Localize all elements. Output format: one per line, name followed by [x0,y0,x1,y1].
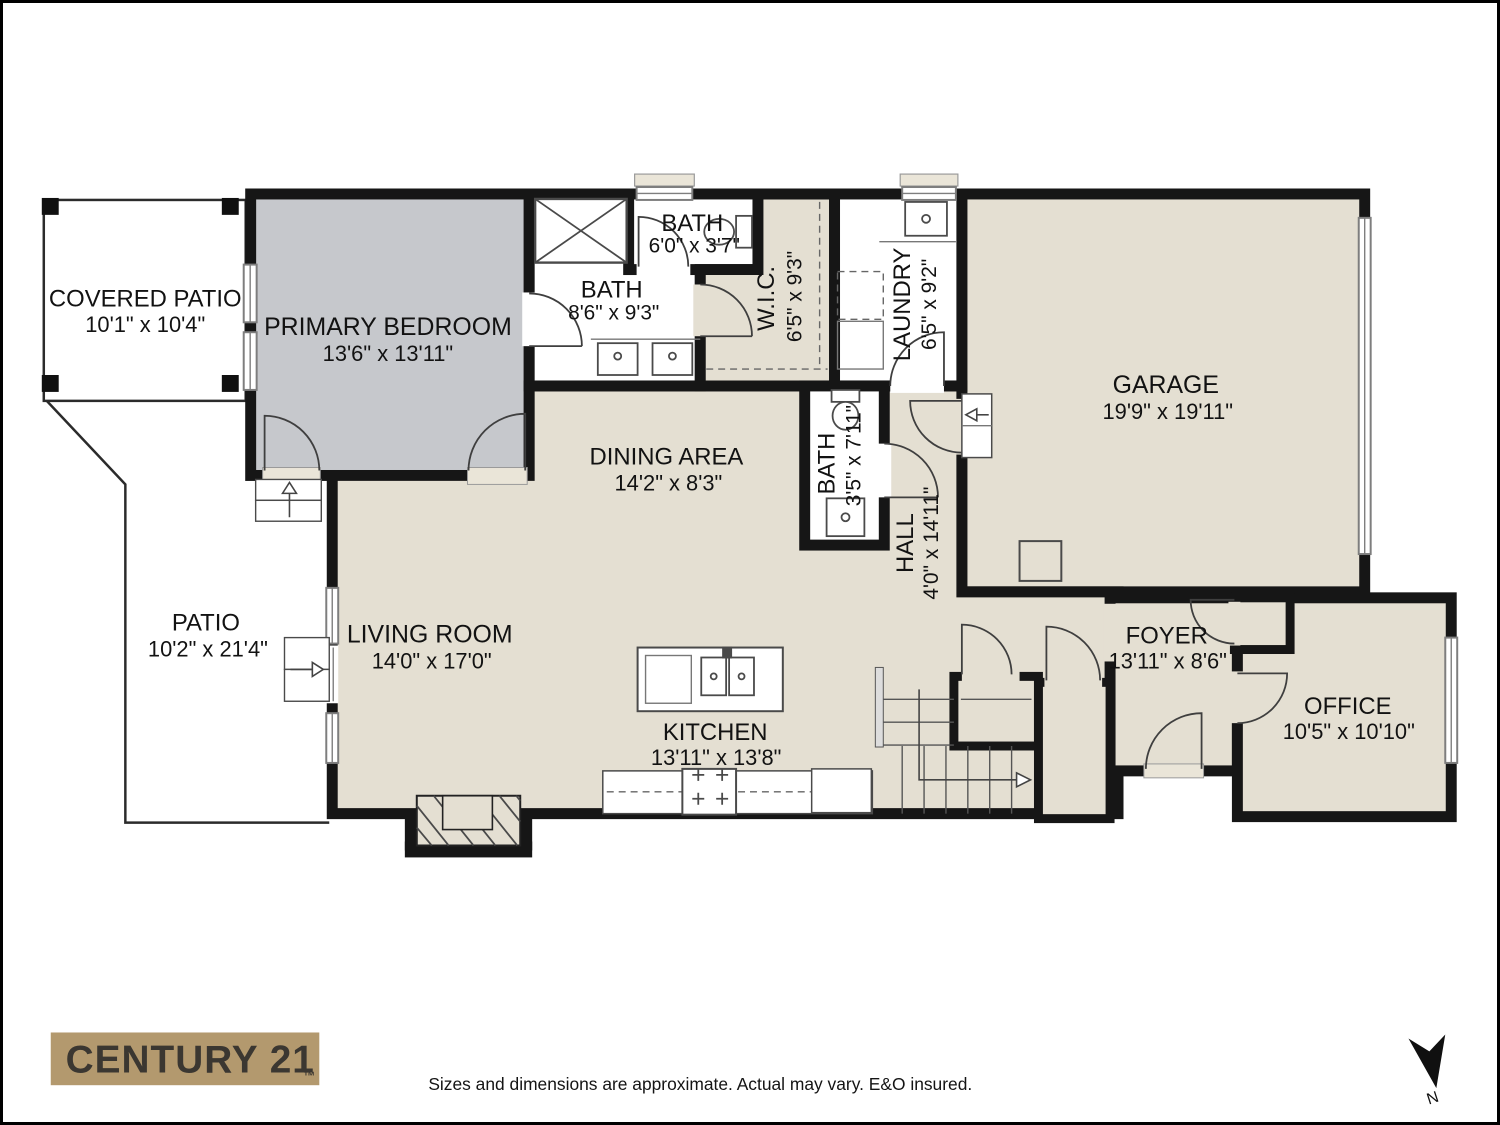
room-dims-laundry: 6'5" x 9'2" [918,259,941,350]
patio-step [256,500,322,521]
room-label-patio: PATIO [172,610,240,637]
room-dims-patio: 10'2" x 21'4" [148,636,268,661]
patio-post [222,375,239,392]
kitchen-sink [701,657,726,695]
patio-post [42,198,59,215]
front-door-opening [1144,764,1204,778]
room-label-bath-primary: BATH [581,276,643,303]
fireplace-side-wall [405,811,417,851]
floor-plan-drawing: COVERED PATIO 10'1" x 10'4" PRIMARY BEDR… [3,3,1497,1122]
room-dims-covered-patio: 10'1" x 10'4" [85,312,205,337]
stair-rail [875,667,883,747]
appliance [812,769,872,813]
room-dims-bath-shower: 6'0" x 3'7" [649,235,740,258]
patio-step [284,638,329,670]
patio-post [42,375,59,392]
century21-logo-text: CENTURY 21 [66,1038,315,1081]
coat-closet-door-opening [1228,602,1240,646]
north-arrow-icon [1408,1034,1445,1088]
kitchen-sink [729,657,754,695]
room-dims-dining: 14'2" x 8'3" [615,470,723,495]
bath-shower-door-opening [637,263,691,277]
wic-door-opening [693,284,707,336]
room-dims-garage: 19'9" x 19'11" [1103,399,1234,424]
room-label-garage: GARAGE [1113,371,1219,399]
bath-hall-door-opening [877,444,891,498]
bath-primary-door-opening [522,292,536,346]
room-label-dining: DINING AREA [590,444,744,471]
window-sill [635,174,695,186]
hall-closet-door-opening [1044,676,1102,688]
footer: CENTURY 21 ™ Sizes and dimensions are ap… [51,1032,1446,1108]
room-dims-bath-primary: 8'6" x 9'3" [568,301,659,324]
room-dims-kitchen: 13'11" x 13'8" [651,745,782,770]
room-dims-living: 14'0" x 17'0" [372,648,492,673]
room-label-living: LIVING ROOM [347,621,513,649]
room-label-primary-bedroom: PRIMARY BEDROOM [264,313,512,341]
office-door-opening [1230,671,1244,723]
room-dims-bath-hall: 3'5" x 7'11" [842,405,865,506]
hall-closet [1038,682,1110,818]
floor-plan-canvas: COVERED PATIO 10'1" x 10'4" PRIMARY BEDR… [0,0,1500,1125]
laundry-door-opening [890,379,944,393]
room-label-wic: W.I.C. [753,266,780,331]
fireplace-side-wall [520,811,532,851]
faucet [722,647,732,659]
room-dims-foyer: 13'11" x 8'6" [1109,648,1227,673]
room-label-covered-patio: COVERED PATIO [49,285,242,312]
room-dims-hall: 4'0" x 14'11" [920,487,943,600]
room-label-office: OFFICE [1304,693,1391,720]
window-sill [900,174,958,186]
north-label: N [1425,1089,1441,1109]
room-label-foyer: FOYER [1126,623,1208,650]
room-dims-primary-bedroom: 13'6" x 13'11" [323,341,454,366]
room-label-bath-hall: BATH [814,433,841,495]
patio-post [222,198,239,215]
room-dims-wic: 6'5" x 9'3" [784,251,807,342]
laundry-sink [905,202,947,236]
room-dims-office: 10'5" x 10'10" [1283,719,1415,744]
toilet-tank [832,390,860,402]
room-label-hall: HALL [892,513,919,573]
trademark-mark: ™ [303,1069,315,1083]
patio-step [284,669,329,701]
firebox [443,796,493,830]
room-label-laundry: LAUNDRY [889,248,916,362]
room-label-kitchen: KITCHEN [663,719,768,746]
bedroom-door-opening [468,468,528,485]
disclaimer-text: Sizes and dimensions are approximate. Ac… [428,1074,972,1094]
room-label-bath-shower: BATH [661,210,723,237]
coat-closet [1234,598,1290,650]
stair-closet [954,676,1039,746]
